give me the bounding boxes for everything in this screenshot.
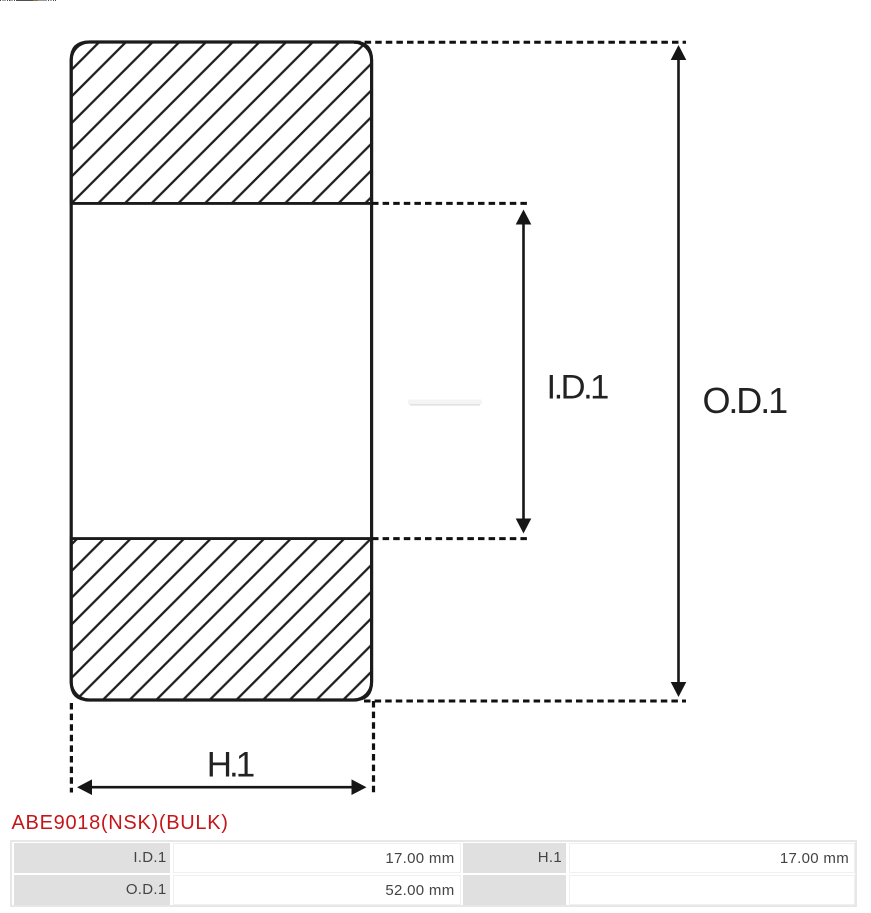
svg-text:O.D.1: O.D.1 bbox=[703, 380, 788, 421]
svg-text:H.1: H.1 bbox=[207, 746, 254, 785]
svg-text:I.D.1: I.D.1 bbox=[547, 369, 609, 407]
